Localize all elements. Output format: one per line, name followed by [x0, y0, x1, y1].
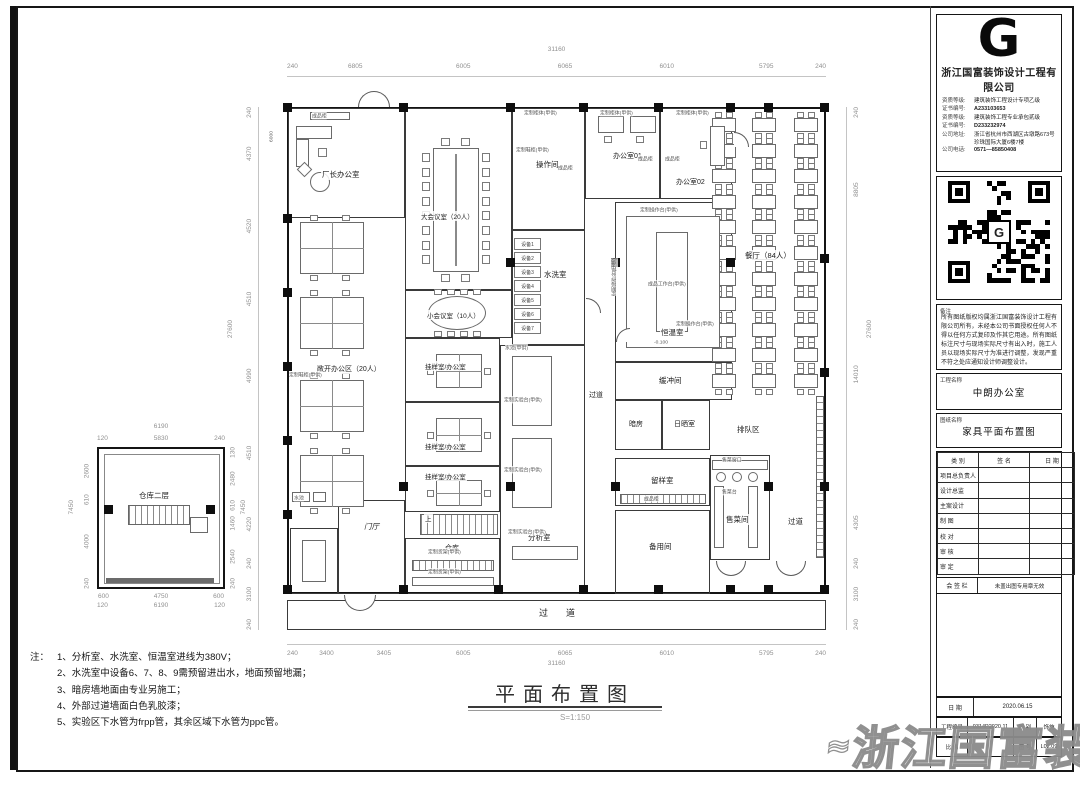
room-label: 小会议室（10人）: [426, 310, 481, 320]
company-panel: G 浙江国富装饰设计工程有限公司 资质等级:建筑装饰工程设计专项乙级 证书编号:…: [936, 14, 1062, 172]
qr-module: [1011, 268, 1016, 273]
room-label: 暗房: [628, 419, 644, 429]
qr-module: [982, 230, 987, 235]
cred2-label: 资质等级:: [942, 115, 974, 122]
room-label-corridor-right: 过道: [787, 516, 804, 527]
annotation: 成品工作台(甲供): [648, 280, 686, 287]
annotation: 定制实验台(甲供): [504, 466, 542, 473]
annotation: 定制操作台(甲供): [611, 258, 618, 296]
qr-module: [1006, 210, 1011, 215]
room-director-office: 厂长办公室: [288, 108, 405, 218]
annotation: 定制鞋柜(甲供): [516, 146, 549, 153]
watermark: ≈浙江国富装饰: [823, 712, 1080, 778]
dimension-line: [287, 76, 826, 77]
stairs: [128, 505, 190, 525]
addr-label: 公司地址:: [942, 132, 974, 147]
room-label-open-office: 敞开办公区（20人）: [316, 364, 382, 374]
notes-list: 1、分析室、水洗室、恒温室进线为380V；2、水洗室中设备6、7、8、9需预留进…: [57, 650, 311, 732]
qr-finder: [1028, 181, 1050, 203]
qr-module: [992, 186, 997, 191]
sig-row-blank: [979, 544, 1030, 559]
qr-module: [967, 234, 972, 239]
dimension-value: 3100: [850, 569, 863, 619]
dimension-total-left: 27600: [227, 320, 234, 338]
dimension-value: 240: [815, 60, 826, 73]
room-label-queue: 排队区: [736, 424, 761, 435]
equipment-list: 设备1设备2设备3设备4设备5设备6设备7: [514, 238, 544, 338]
qr-module: [1045, 259, 1050, 264]
remark-panel: 备注 所有图纸版权均属浙江国富装饰设计工程有限公司所有，未经本公司书面授权任何人…: [936, 304, 1062, 370]
qr-module: [997, 268, 1002, 273]
project-name-panel: 工程名称 中朗办公室: [936, 373, 1062, 410]
room-office-02: 办公室02: [660, 108, 732, 199]
annotation: 定制货架(甲供): [428, 568, 461, 575]
dimension-value: 240: [82, 578, 92, 589]
dimension-value: 2600: [82, 447, 92, 494]
room-label: 售菜间: [725, 514, 750, 525]
room-label: 水洗室: [543, 269, 568, 280]
room-label: 办公室02: [675, 177, 706, 187]
dimension-line: [258, 107, 259, 630]
sig-row-label: 项目总负责人: [938, 468, 979, 483]
room-sample-office-2: 挂样室/办公室: [405, 402, 500, 466]
sig-row-blank: [1030, 483, 1075, 498]
dimension-value: 6010: [616, 60, 717, 73]
qr-module: [1026, 220, 1031, 225]
dimension-value: 6805: [298, 60, 413, 73]
cred1-label: 资质等级:: [942, 98, 974, 105]
dimension-value: 4000: [82, 505, 92, 578]
room-darkroom: 暗房: [615, 400, 662, 450]
dimension-value: 6005: [413, 647, 514, 659]
dimension-value: 4370: [243, 118, 256, 189]
drawing-name-panel: 图纸名称 家具平面布置图: [936, 413, 1062, 448]
cred1-no: A233103653: [974, 106, 1056, 113]
dimension-chain-bottom: 240340034056005606560105795240: [287, 647, 826, 659]
room-label: 操作间: [535, 159, 560, 170]
qr-module: [1011, 249, 1016, 254]
dimension-value: 130: [228, 447, 238, 458]
drawing-name-label: 图纸名称: [940, 416, 962, 424]
cred1-value: 建筑装饰工程设计专项乙级: [974, 98, 1056, 105]
dimension-value: 240: [243, 619, 256, 630]
equipment-box: 设备1: [514, 238, 541, 250]
dimension-value: 4750: [110, 592, 212, 601]
equipment-box: 设备5: [514, 294, 541, 306]
room-label-dining: 餐厅（84人）: [744, 250, 792, 261]
qr-module: [997, 244, 1002, 249]
dimension-value: 2480: [228, 458, 238, 500]
dimension-value: 240: [287, 647, 298, 659]
room-label: 挂样室/办公室: [424, 471, 467, 481]
room-sample-office-1: 挂样室/办公室: [405, 338, 500, 402]
project-name-label: 工程名称: [940, 376, 962, 384]
dimension-value: 4510: [243, 262, 256, 335]
qr-module: [1021, 230, 1026, 235]
annotation: 水池: [294, 494, 304, 501]
qr-module: [997, 259, 1002, 264]
equipment-box: 设备4: [514, 280, 541, 292]
dimension-value: 120: [214, 601, 225, 610]
room-conference: 大会议室（20人）: [405, 108, 512, 290]
room-label: 留样室: [650, 475, 675, 486]
sig-row-blank: [979, 513, 1030, 528]
dimension-chain: 6004750600: [97, 592, 225, 601]
sig-row-blank: [1030, 528, 1075, 543]
sig-row-blank: [979, 528, 1030, 543]
room-label: 缓冲间: [658, 375, 683, 386]
room-office-01: 办公室01: [585, 108, 660, 199]
note-line: 2、水洗室中设备6、7、8、9需预留进出水，地面预留地漏；: [57, 666, 311, 682]
dimension-value: 8805: [850, 118, 863, 261]
dimension-value: 4305: [850, 488, 863, 558]
room-small-meeting: 小会议室（10人）: [405, 290, 512, 338]
equipment-box: 设备6: [514, 308, 541, 320]
sig-row-blank: [979, 498, 1030, 513]
sig-table-header: 签 名: [979, 453, 1030, 468]
sig-row-blank: [1030, 498, 1075, 513]
room-storage: 仓库: [405, 538, 500, 594]
annotation: 定制鞋柜(甲供): [289, 371, 322, 378]
room-label: 门厅: [363, 521, 380, 532]
dimension-total-right: 27600: [866, 320, 873, 338]
qr-finder: [948, 261, 970, 283]
dimension-value: 240: [850, 558, 863, 569]
qr-module: [1045, 220, 1050, 225]
dimension-line: [287, 644, 826, 645]
equipment-box: 设备3: [514, 266, 541, 278]
tel-value: 0571—85850408: [974, 147, 1056, 154]
room-label: 挂样室/办公室: [424, 361, 467, 371]
dimension-value: 610: [82, 494, 92, 505]
dimension-value: 610: [228, 500, 238, 511]
qr-center-logo: G: [987, 220, 1011, 244]
note-line: 1、分析室、水洗室、恒温室进线为380V；: [57, 650, 311, 666]
annotation: 定制柜体(甲供): [524, 109, 557, 116]
notes-block: 注： 1、分析室、水洗室、恒温室进线为380V；2、水洗室中设备6、7、8、9需…: [30, 650, 311, 732]
annotation: 成品柜: [638, 155, 653, 162]
dimension-value: 240: [815, 647, 826, 659]
cred2-no-label: 证书编号:: [942, 123, 974, 130]
room-label: 挂样室/办公室: [424, 441, 467, 451]
dimension-total: 7450: [68, 500, 75, 514]
dimension-chain-top: 24068056005606560105795240: [287, 60, 826, 73]
inner-dimension: 6000: [269, 131, 274, 142]
title-underline-thin: [468, 710, 662, 711]
dimension-value: 5795: [717, 647, 815, 659]
stairs-landing: [190, 517, 208, 533]
dimension-value: 600: [212, 592, 225, 601]
dimension-value: 5795: [717, 60, 815, 73]
room-label-corridor-bottom: 过道: [538, 606, 594, 619]
dimension-value: 6065: [514, 60, 616, 73]
sig-row-blank: [979, 468, 1030, 483]
cred2-value: 建筑装饰工程专业承包贰级: [974, 115, 1056, 122]
company-logo: G: [937, 15, 1061, 64]
note-line: 5、实验区下水管为frpp管，其余区域下水管为ppc管。: [57, 715, 311, 731]
annotation: 售菜窗口: [722, 456, 742, 463]
annotation: 定制操作台(甲供): [676, 320, 714, 327]
qr-module: [1031, 278, 1036, 283]
tel-label: 公司电话:: [942, 147, 974, 154]
dimension-value: 120: [97, 601, 108, 610]
dimension-value: 240: [243, 558, 256, 569]
watermark-wave-icon: ≈: [824, 729, 855, 764]
room-operation: 操作间: [512, 108, 585, 230]
qr-module: [1006, 278, 1011, 283]
dimension-value: 6190: [108, 601, 214, 610]
dimension-total: 7450: [240, 500, 247, 514]
qr-module: [997, 200, 1002, 205]
cred2-no: D233232974: [974, 123, 1056, 130]
sig-row-blank: [979, 483, 1030, 498]
qr-module: [1045, 244, 1050, 249]
dimension-value: 2540: [228, 535, 238, 578]
annotation: 成品柜: [312, 112, 327, 119]
sig-row-label: 设计总监: [938, 483, 979, 498]
dimension-value: 600: [97, 592, 110, 601]
qr-code: G: [948, 181, 1050, 283]
huiqian-panel: 会 签 栏 未盖出图专用章无效: [936, 577, 1062, 594]
dimension-value: 14010: [850, 261, 863, 488]
sig-row-label: 制 图: [938, 513, 979, 528]
warehouse-2f-sill: [106, 578, 214, 583]
dimension-value: 240: [850, 619, 863, 630]
qr-module: [1045, 278, 1050, 283]
annotation: 成品柜: [558, 164, 573, 171]
dimension-value: 4510: [243, 416, 256, 489]
dimension-value: 240: [243, 107, 256, 118]
sig-table-header: 类 别: [938, 453, 979, 468]
equipment-box: 设备7: [514, 322, 541, 334]
dimension-chain-left: 2404370452045104990451042202403100240: [243, 107, 256, 630]
column: [104, 505, 113, 514]
level-mark: -0.100: [654, 340, 668, 345]
dimension-value: 3405: [355, 647, 412, 659]
dimension-value: 3100: [243, 569, 256, 619]
annotation: 水池(甲供): [505, 344, 528, 351]
annotation: 定制实验台(甲供): [504, 396, 542, 403]
watermark-text: 浙江国富装饰: [850, 721, 1080, 775]
sig-row-blank: [1030, 468, 1075, 483]
sig-row-label: 审 核: [938, 544, 979, 559]
dimension-value: 3400: [298, 647, 355, 659]
dimension-value: 120: [97, 433, 108, 443]
annotation: 定制实验台(甲供): [508, 528, 546, 535]
note-line: 4、外部过道墙面白色乳胶漆；: [57, 699, 311, 715]
annotation: 成品柜: [644, 495, 659, 502]
room-entry-hall: 门厅: [338, 500, 405, 594]
addr-value: 浙江省杭州市西湖区古墩路673号珍珠国际大厦6楼7楼: [974, 132, 1056, 147]
sig-row-blank: [1030, 513, 1075, 528]
dimension-value: 6065: [514, 647, 616, 659]
huiqian-label: 会 签 栏: [937, 578, 978, 593]
title-underline: [468, 706, 662, 708]
note-line: 3、暗房墙地面由专业另施工；: [57, 683, 311, 699]
dimension-line: [846, 107, 847, 630]
qr-module: [1035, 249, 1040, 254]
dimension-chain: 130248061014602540240: [228, 447, 238, 589]
dimension-value: 1460: [228, 511, 238, 536]
dimension-value: 240: [228, 578, 238, 589]
sig-row-label: 主案设计: [938, 498, 979, 513]
drawing-sheet: G 浙江国富装饰设计工程有限公司 资质等级:建筑装饰工程设计专项乙级 证书编号:…: [0, 0, 1080, 791]
annotation: 售菜台: [722, 488, 737, 495]
room-label: 厂长办公室: [321, 169, 361, 180]
qr-panel: G: [936, 176, 1062, 300]
dimension-total-top: 31160: [287, 46, 826, 53]
remark-text: 所有图纸版权均属浙江国富装饰设计工程有限公司所有，未经本公司书面授权任何人不得以…: [937, 305, 1061, 370]
dimension-total-bottom: 31160: [287, 660, 826, 667]
dimension-chain: 1206190120: [97, 601, 225, 610]
annotation: 定制柜体(甲供): [676, 109, 709, 116]
sig-row-blank: [1030, 559, 1075, 574]
sig-row-blank: [979, 559, 1030, 574]
drawing-scale: S=1:150: [560, 713, 590, 722]
dimension-value: 6005: [413, 60, 514, 73]
dimension-value: 4520: [243, 189, 256, 262]
huiqian-note: 未盖出图专用章无效: [978, 578, 1061, 593]
notes-prefix: 注：: [30, 650, 49, 666]
room-buffer: 缓冲间: [615, 362, 732, 400]
dimension-value: 5830: [108, 433, 214, 443]
room-food-sale: 售菜间: [710, 455, 770, 560]
company-name: 浙江国富装饰设计工程有限公司: [937, 64, 1061, 94]
annotation: 定制货架(甲供): [428, 548, 461, 555]
qr-module: [953, 239, 958, 244]
room-sun-room: 日晒室: [662, 400, 710, 450]
room-label: 日晒室: [673, 419, 696, 429]
dimension-total: 6190: [97, 423, 225, 430]
column: [206, 505, 215, 514]
titleblock-separator: [930, 6, 931, 768]
qr-module: [997, 215, 1002, 220]
drawing-title: 平面布置图: [450, 678, 680, 707]
room-label-corridor-mid: 过道: [588, 390, 604, 400]
signature-table-panel: 类 别签 名日 期 项目总负责人设计总监主案设计制 图校 对审 核审 定: [936, 451, 1062, 578]
remark-label: 备注: [940, 307, 951, 315]
dimension-value: 6010: [616, 647, 717, 659]
qr-module: [1031, 254, 1036, 259]
dimension-value: 240: [850, 107, 863, 118]
cred1-no-label: 证书编号:: [942, 106, 974, 113]
room-label: 恒温室: [660, 327, 685, 338]
room-label: 大会议室（20人）: [420, 211, 475, 221]
annotation: 成品柜: [665, 155, 680, 162]
qr-module: [1045, 234, 1050, 239]
room-sample-keep: 留样室: [615, 458, 710, 506]
sig-row-label: 校 对: [938, 528, 979, 543]
stairs-up-label: 上: [424, 513, 433, 523]
qr-module: [1035, 268, 1040, 273]
qr-module: [1006, 196, 1011, 201]
room-sample-office-3: 挂样室/办公室: [405, 466, 500, 512]
qr-finder: [948, 181, 970, 203]
sig-row-label: 审 定: [938, 559, 979, 574]
annotation: 定制操作台(甲供): [640, 206, 678, 213]
qr-module: [1001, 181, 1006, 186]
dimension-value: 4990: [243, 335, 256, 416]
sig-table-header: 日 期: [1030, 453, 1075, 468]
dimension-chain: 1205830240: [97, 433, 225, 443]
equipment-box: 设备2: [514, 252, 541, 264]
room-label-warehouse-2f: 仓库二层: [138, 490, 170, 501]
qr-module: [963, 239, 968, 244]
room-spare: 备用间: [615, 510, 710, 594]
room-label: 备用间: [648, 541, 673, 552]
annotation: 定制柜体(甲供): [600, 109, 633, 116]
signature-table: 类 别签 名日 期 项目总负责人设计总监主案设计制 图校 对审 核审 定: [937, 452, 1075, 575]
dimension-value: 240: [287, 60, 298, 73]
qr-module: [982, 239, 987, 244]
dimension-value: 240: [214, 433, 225, 443]
dimension-chain-right: 24088051401043052403100240: [850, 107, 863, 630]
dimension-chain: 26006104000240: [82, 447, 92, 589]
huiqian-sign-area: [936, 593, 1062, 697]
sig-row-blank: [1030, 544, 1075, 559]
elevator-shaft: [290, 528, 338, 594]
